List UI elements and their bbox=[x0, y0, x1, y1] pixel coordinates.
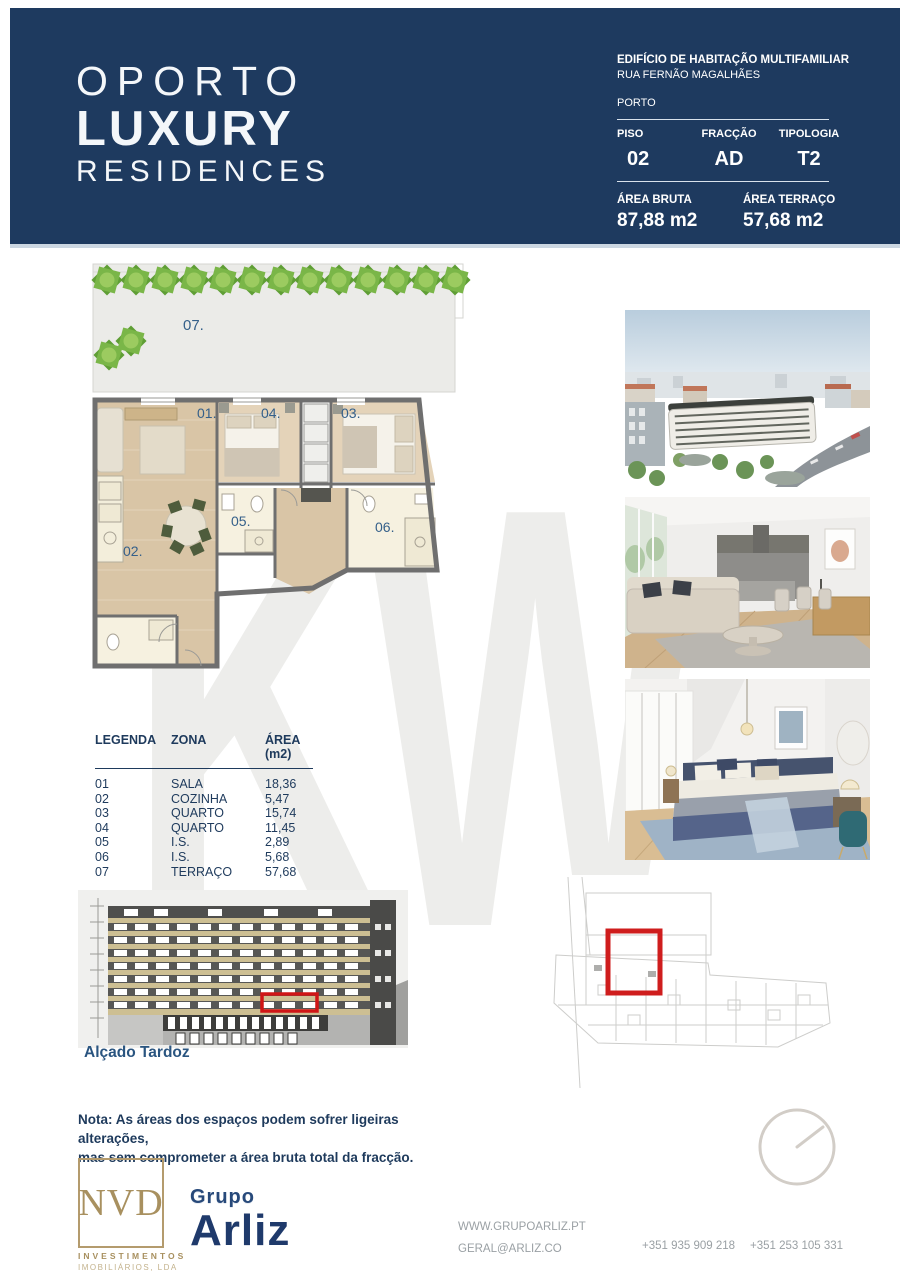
table-row: 07TERRAÇO57,68 bbox=[95, 865, 313, 880]
legend-header-row: LEGENDA ZONA ÁREA (m2) bbox=[95, 733, 313, 769]
nvd-logo: NVD bbox=[78, 1158, 164, 1248]
floor-plan-drawing: 07. bbox=[85, 258, 475, 672]
arliz-name-text: Arliz bbox=[190, 1206, 290, 1256]
round-mirror-icon bbox=[837, 721, 869, 765]
area-terraco-value: 57,68 m2 bbox=[743, 210, 853, 232]
table-cell: 05 bbox=[95, 835, 171, 850]
phone-1: +351 935 909 218 bbox=[642, 1240, 735, 1252]
table-cell: 04 bbox=[95, 821, 171, 836]
unit-floor-plan: 07. bbox=[85, 258, 475, 677]
room-label-bedroom1: 03. bbox=[341, 405, 360, 421]
table-row: 06I.S.5,68 bbox=[95, 850, 313, 865]
elevation-caption: Alçado Tardoz bbox=[84, 1044, 190, 1062]
table-cell: 15,74 bbox=[265, 806, 313, 821]
building-city: PORTO bbox=[617, 97, 855, 109]
building-name: EDIFÍCIO DE HABITAÇÃO MULTIFAMILIAR bbox=[617, 54, 855, 66]
legend-col-area: ÁREA (m2) bbox=[265, 733, 313, 761]
table-row: 03QUARTO15,74 bbox=[95, 806, 313, 821]
nvd-subtitle-1: INVESTIMENTOS bbox=[78, 1251, 186, 1261]
room-label-terrace: 07. bbox=[183, 317, 204, 334]
photo-bedroom bbox=[625, 679, 870, 860]
area-terraco-label: ÁREA TERRAÇO bbox=[743, 194, 853, 206]
table-cell: 11,45 bbox=[265, 821, 313, 836]
table-cell: 03 bbox=[95, 806, 171, 821]
room-label-living: 01. bbox=[197, 405, 216, 421]
table-cell: 07 bbox=[95, 865, 171, 880]
kitchen-cabinet-icon bbox=[125, 408, 177, 420]
fraccao-value: AD bbox=[689, 148, 769, 171]
table-cell: I.S. bbox=[171, 850, 265, 865]
nvd-logo-text: NVD bbox=[78, 1181, 163, 1225]
table-cell: 06 bbox=[95, 850, 171, 865]
legend-col-legenda: LEGENDA bbox=[95, 733, 171, 761]
kw-watermark-circle-icon bbox=[755, 1105, 839, 1189]
website-link[interactable]: WWW.GRUPOARLIZ.PT bbox=[458, 1221, 586, 1233]
phone-2: +351 253 105 331 bbox=[750, 1240, 843, 1252]
pendant-light-icon bbox=[741, 723, 753, 735]
room-label-bath1: 05. bbox=[231, 513, 250, 529]
piso-value: 02 bbox=[617, 148, 689, 171]
spec-values-row: 02 AD T2 bbox=[617, 148, 855, 171]
closet-base bbox=[301, 488, 331, 502]
nightstand-left bbox=[663, 779, 679, 803]
legend-table: LEGENDA ZONA ÁREA (m2) 01SALA18,3602COZI… bbox=[95, 733, 313, 879]
spec-labels-row: PISO FRACÇÃO TIPOLOGIA bbox=[617, 128, 855, 140]
divider bbox=[617, 119, 829, 120]
table-cell: 5,68 bbox=[265, 850, 313, 865]
table-cell: 02 bbox=[95, 792, 171, 807]
logo-line-2: LUXURY bbox=[76, 101, 331, 157]
table-row: 04QUARTO11,45 bbox=[95, 821, 313, 836]
building-elevation bbox=[78, 890, 408, 1057]
table-cell: TERRAÇO bbox=[171, 865, 265, 880]
room-label-bedroom2: 04. bbox=[261, 405, 280, 421]
fraccao-label: FRACÇÃO bbox=[689, 128, 769, 140]
key-plan bbox=[528, 875, 846, 1095]
area-labels-row: ÁREA BRUTA ÁREA TERRAÇO bbox=[617, 194, 855, 206]
area-bruta-value: 87,88 m2 bbox=[617, 210, 743, 232]
table-cell: SALA bbox=[171, 777, 265, 792]
table-cell: 5,47 bbox=[265, 792, 313, 807]
table-row: 02COZINHA5,47 bbox=[95, 792, 313, 807]
note-line-1: Nota: As áreas dos espaços podem sofrer … bbox=[78, 1110, 458, 1148]
header-band: OPORTO LUXURY RESIDENCES EDIFÍCIO DE HAB… bbox=[10, 8, 900, 248]
table-cell: 2,89 bbox=[265, 835, 313, 850]
tipologia-value: T2 bbox=[769, 148, 849, 171]
piso-label: PISO bbox=[617, 128, 689, 140]
property-sheet-page: KW OPORTO LUXURY RESIDENCES EDIFÍCIO DE … bbox=[0, 0, 904, 1280]
room-label-bath2: 06. bbox=[375, 519, 394, 535]
sofa-icon bbox=[97, 408, 123, 472]
divider bbox=[617, 181, 829, 182]
building-street: RUA FERNÃO MAGALHÃES bbox=[617, 69, 855, 81]
table-cell: I.S. bbox=[171, 835, 265, 850]
email-link[interactable]: GERAL@ARLIZ.CO bbox=[458, 1243, 562, 1255]
kitchen-hood-icon bbox=[753, 525, 769, 553]
logo-line-3: RESIDENCES bbox=[76, 155, 331, 189]
table-row: 05I.S.2,89 bbox=[95, 835, 313, 850]
unit-info-panel: EDIFÍCIO DE HABITAÇÃO MULTIFAMILIAR RUA … bbox=[617, 54, 855, 232]
photo-aerial bbox=[625, 310, 870, 487]
main-building bbox=[668, 396, 816, 450]
project-logo: OPORTO LUXURY RESIDENCES bbox=[76, 58, 331, 189]
sofa bbox=[627, 577, 739, 633]
table-cell: QUARTO bbox=[171, 806, 265, 821]
table-cell: 57,68 bbox=[265, 865, 313, 880]
legend-col-zona: ZONA bbox=[171, 733, 265, 761]
kitchen-island-icon bbox=[140, 426, 185, 474]
photo-living-room bbox=[625, 497, 870, 668]
area-bruta-label: ÁREA BRUTA bbox=[617, 194, 743, 206]
table-cell: 01 bbox=[95, 777, 171, 792]
room-label-kitchen: 02. bbox=[123, 543, 142, 559]
table-row: 01SALA18,36 bbox=[95, 777, 313, 792]
dining-chairs bbox=[775, 587, 831, 611]
nvd-subtitle-2: IMOBILIÁRIOS, LDA bbox=[78, 1263, 178, 1272]
table-cell: COZINHA bbox=[171, 792, 265, 807]
logo-line-1: OPORTO bbox=[76, 58, 331, 105]
grupo-arliz-logo: Grupo Arliz bbox=[190, 1186, 290, 1256]
table-cell: QUARTO bbox=[171, 821, 265, 836]
legend-rows: 01SALA18,3602COZINHA5,4703QUARTO15,7404Q… bbox=[95, 777, 313, 879]
table-cell: 18,36 bbox=[265, 777, 313, 792]
area-values-row: 87,88 m2 57,68 m2 bbox=[617, 210, 855, 232]
tipologia-label: TIPOLOGIA bbox=[769, 128, 849, 140]
accent-chair bbox=[839, 811, 867, 847]
